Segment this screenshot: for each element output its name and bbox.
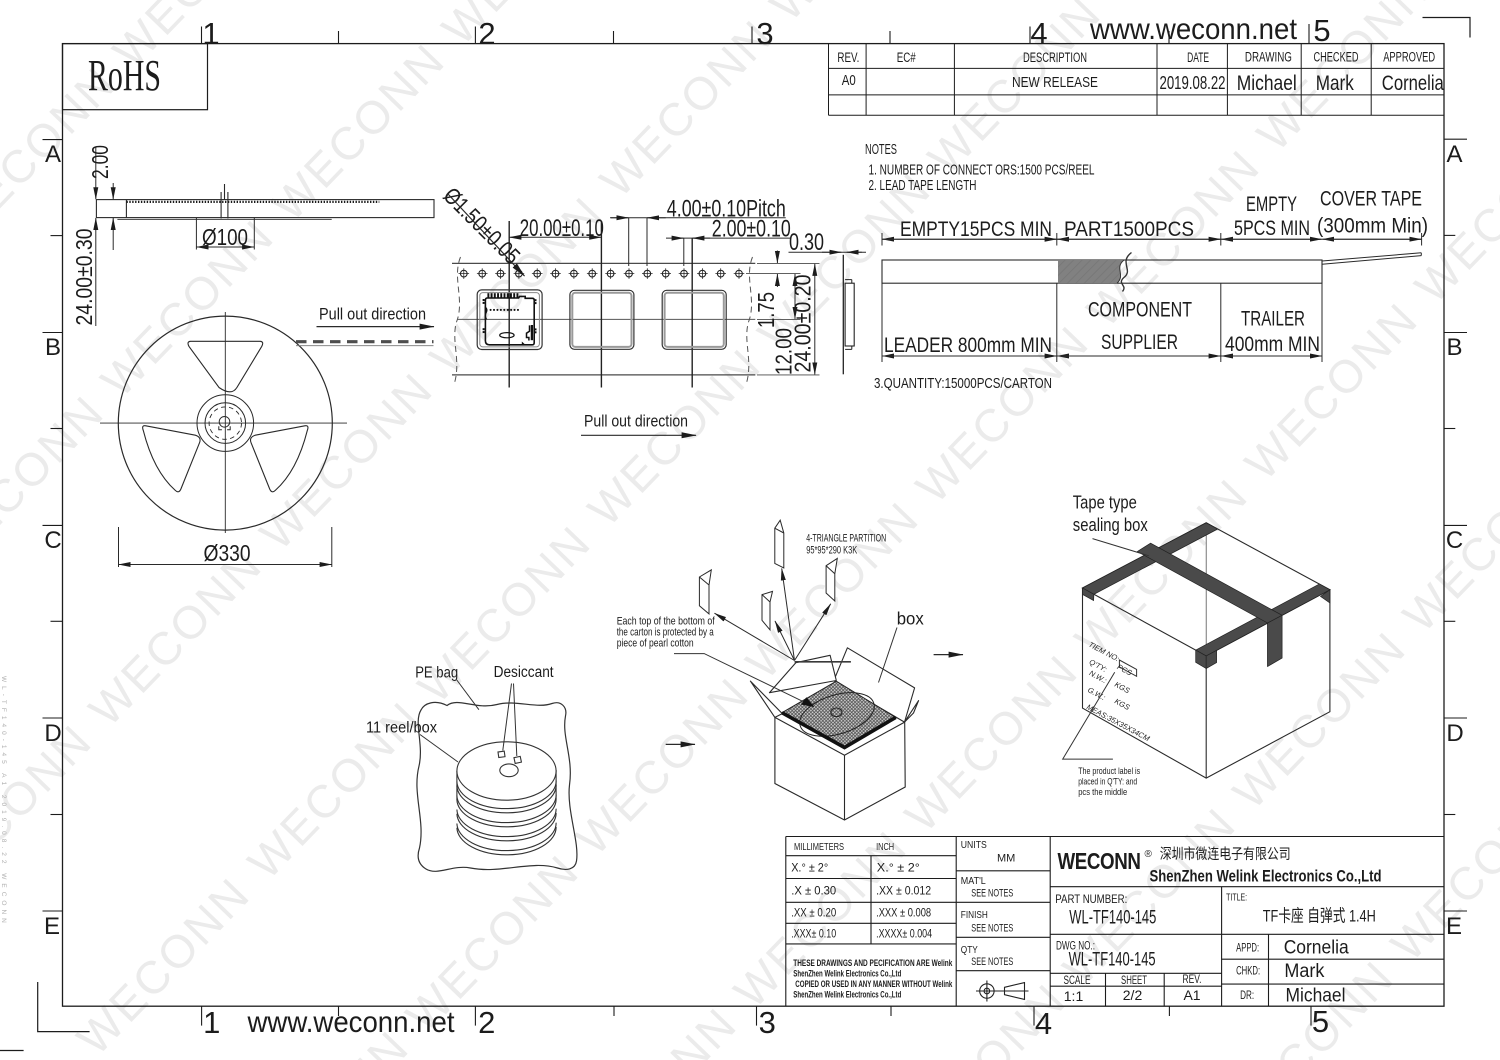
- svg-text:EMPTY15PCS MIN: EMPTY15PCS MIN: [900, 217, 1052, 241]
- svg-text:WL-TF140-145: WL-TF140-145: [1069, 950, 1156, 971]
- svg-text:MAT'L: MAT'L: [961, 875, 986, 887]
- svg-text:A0: A0: [842, 72, 856, 89]
- svg-text:SEE NOTES: SEE NOTES: [971, 956, 1013, 968]
- svg-text:The product label is: The product label is: [1078, 766, 1140, 777]
- svg-text:Michael: Michael: [1237, 71, 1297, 95]
- svg-text:.XX ± 0.012: .XX ± 0.012: [876, 886, 931, 898]
- svg-text:4-TRIANGLE PARTITION: 4-TRIANGLE PARTITION: [806, 533, 886, 545]
- svg-text:Each top of the bottom of: Each top of the bottom of: [617, 615, 716, 627]
- svg-text:THESE DRAWINGS AND PECIFICATIO: THESE DRAWINGS AND PECIFICATION ARE Weli…: [793, 958, 953, 968]
- svg-text:A1: A1: [1183, 987, 1200, 1003]
- svg-text:Pull out direction: Pull out direction: [319, 306, 426, 324]
- svg-text:REV.: REV.: [1183, 972, 1202, 986]
- svg-text:2.00: 2.00: [87, 145, 113, 179]
- svg-text:C: C: [44, 527, 61, 554]
- svg-text:.X ± 0.30: .X ± 0.30: [791, 886, 836, 898]
- svg-text:INCH: INCH: [876, 841, 894, 853]
- svg-text:Ø330: Ø330: [204, 540, 251, 566]
- svg-text:C: C: [1446, 527, 1463, 554]
- svg-text:24.00±0.30: 24.00±0.30: [71, 229, 97, 326]
- svg-text:SHEET: SHEET: [1121, 973, 1147, 987]
- svg-text:2: 2: [478, 1005, 495, 1040]
- svg-text:NEW RELEASE: NEW RELEASE: [1012, 74, 1098, 91]
- svg-text:MILLIMETERS: MILLIMETERS: [794, 841, 844, 853]
- svg-text:COPIED OR USED IN ANY MANNER W: COPIED OR USED IN ANY MANNER WITHOUT Wel…: [795, 979, 953, 989]
- svg-text:Ø100: Ø100: [202, 224, 248, 250]
- svg-text:Tape type: Tape type: [1073, 493, 1137, 513]
- svg-text:D: D: [44, 720, 61, 747]
- svg-text:FINISH: FINISH: [961, 909, 988, 921]
- svg-text:NOTES: NOTES: [865, 141, 897, 158]
- svg-text:WECONN: WECONN: [1058, 848, 1141, 874]
- svg-text:1:1: 1:1: [1064, 988, 1084, 1004]
- svg-text:PE bag: PE bag: [415, 665, 458, 682]
- svg-text:3.QUANTITY:15000PCS/CARTON: 3.QUANTITY:15000PCS/CARTON: [874, 375, 1052, 392]
- svg-text:UNITS: UNITS: [961, 839, 987, 851]
- svg-text:placed in Q'TY: and: placed in Q'TY: and: [1078, 777, 1137, 788]
- svg-text:Cornelia: Cornelia: [1284, 938, 1349, 959]
- svg-text:EMPTY: EMPTY: [1246, 192, 1297, 216]
- svg-text:ShenZhen Welink Electronics Co: ShenZhen Welink Electronics Co.,Ltd: [793, 990, 901, 1000]
- svg-text:A: A: [1446, 141, 1462, 168]
- svg-text:.XXX ± 0.008: .XXX ± 0.008: [876, 908, 931, 920]
- svg-text:Cornelia: Cornelia: [1382, 71, 1444, 95]
- svg-text:box: box: [897, 609, 924, 629]
- svg-text:SEE NOTES: SEE NOTES: [971, 923, 1013, 935]
- svg-text:X.° ± 2°: X.° ± 2°: [791, 863, 828, 875]
- svg-text:CHECKED: CHECKED: [1314, 50, 1359, 65]
- svg-text:1: 1: [203, 1005, 220, 1040]
- svg-text:A: A: [45, 141, 61, 168]
- svg-text:COMPONENT: COMPONENT: [1088, 298, 1192, 322]
- svg-text:24.00±0.20: 24.00±0.20: [790, 275, 816, 373]
- svg-text:X.° ± 2°: X.° ± 2°: [877, 863, 920, 875]
- svg-text:2: 2: [478, 16, 495, 51]
- svg-text:(300mm Min): (300mm Min): [1317, 214, 1428, 238]
- svg-text:.XXX± 0.10: .XXX± 0.10: [791, 929, 836, 941]
- svg-text:1: 1: [202, 16, 219, 51]
- svg-text:95*95*290 K3K: 95*95*290 K3K: [806, 545, 857, 557]
- svg-text:www.weconn.net: www.weconn.net: [1089, 13, 1298, 46]
- svg-text:SEE NOTES: SEE NOTES: [971, 888, 1013, 900]
- svg-text:APPROVED: APPROVED: [1383, 50, 1435, 65]
- svg-text:REV.: REV.: [837, 50, 859, 65]
- svg-text:the carton is protected by a: the carton is protected by a: [617, 627, 715, 639]
- svg-text:D: D: [1446, 720, 1463, 747]
- svg-text:TF卡座 自弹式 1.4H: TF卡座 自弹式 1.4H: [1263, 907, 1376, 926]
- svg-text:DATE: DATE: [1187, 50, 1209, 65]
- svg-text:DR:: DR:: [1240, 990, 1254, 1002]
- svg-text:WL-TF140-145: WL-TF140-145: [1069, 908, 1156, 929]
- svg-text:11 reel/box: 11 reel/box: [366, 719, 437, 736]
- svg-text:B: B: [1446, 334, 1462, 361]
- svg-text:1. NUMBER OF CONNECT ORS:1500: 1. NUMBER OF CONNECT ORS:1500 PCS/REEL: [869, 162, 1095, 179]
- svg-text:PART NUMBER:: PART NUMBER:: [1055, 894, 1127, 906]
- svg-text:5PCS MIN: 5PCS MIN: [1234, 216, 1310, 240]
- svg-text:5: 5: [1313, 13, 1330, 48]
- svg-text:CHKD:: CHKD:: [1236, 965, 1260, 977]
- svg-text:Mark: Mark: [1284, 961, 1324, 982]
- svg-text:piece of pearl cotton: piece of pearl cotton: [617, 638, 694, 650]
- svg-text:3: 3: [759, 1005, 776, 1040]
- svg-text:E: E: [44, 913, 60, 940]
- svg-text:.XXXX± 0.004: .XXXX± 0.004: [876, 929, 932, 941]
- svg-text:E: E: [1446, 913, 1462, 940]
- svg-text:WL-TF140-145 A1 2019.08.22 WEC: WL-TF140-145 A1 2019.08.22 WECONN: [0, 676, 7, 927]
- svg-text:PART1500PCS: PART1500PCS: [1064, 217, 1194, 241]
- svg-text:ShenZhen Welink Electronics Co: ShenZhen Welink Electronics Co.,Ltd: [793, 969, 901, 979]
- svg-text:Michael: Michael: [1286, 986, 1346, 1007]
- svg-text:3: 3: [756, 16, 773, 51]
- svg-text:深圳市微连电子有限公司: 深圳市微连电子有限公司: [1160, 846, 1291, 863]
- svg-text:EC#: EC#: [897, 50, 916, 65]
- svg-text:COVER TAPE: COVER TAPE: [1320, 187, 1422, 211]
- svg-text:ShenZhen Welink Electronics Co: ShenZhen Welink Electronics Co.,Ltd: [1150, 867, 1382, 886]
- svg-text:DESCRIPTION: DESCRIPTION: [1023, 50, 1087, 65]
- svg-text:sealing box: sealing box: [1073, 515, 1148, 535]
- svg-text:Desiccant: Desiccant: [494, 664, 555, 681]
- svg-text:4: 4: [1035, 1006, 1052, 1041]
- svg-text:5: 5: [1312, 1004, 1329, 1039]
- svg-text:QTY: QTY: [961, 944, 978, 956]
- svg-text:2. LEAD TAPE LENGTH: 2. LEAD TAPE LENGTH: [869, 177, 977, 194]
- svg-text:TRAILER: TRAILER: [1241, 307, 1305, 331]
- svg-text:SCALE: SCALE: [1064, 973, 1091, 987]
- svg-text:1.75: 1.75: [753, 292, 779, 328]
- svg-text:TITLE:: TITLE:: [1226, 892, 1247, 904]
- svg-text:2/2: 2/2: [1123, 987, 1143, 1003]
- svg-text:www.weconn.net: www.weconn.net: [247, 1006, 456, 1039]
- svg-text:.XX ± 0.20: .XX ± 0.20: [791, 908, 836, 920]
- svg-text:2019.08.22: 2019.08.22: [1160, 73, 1226, 93]
- svg-text:20.00±0.10: 20.00±0.10: [520, 215, 604, 242]
- svg-text:DRAWING: DRAWING: [1245, 50, 1292, 65]
- svg-text:SUPPLIER: SUPPLIER: [1101, 330, 1178, 354]
- svg-text:Mark: Mark: [1316, 71, 1354, 95]
- svg-text:APPD:: APPD:: [1236, 942, 1259, 954]
- svg-text:B: B: [45, 334, 61, 361]
- svg-text:RoHS: RoHS: [88, 51, 161, 100]
- svg-text:LEADER 800mm MIN: LEADER 800mm MIN: [884, 333, 1052, 357]
- svg-text:pcs the middle: pcs the middle: [1078, 787, 1127, 798]
- svg-text:®: ®: [1145, 849, 1153, 860]
- svg-text:MM: MM: [997, 853, 1015, 865]
- svg-text:Pull out direction: Pull out direction: [584, 413, 688, 431]
- svg-text:400mm MIN: 400mm MIN: [1225, 332, 1320, 356]
- svg-text:4: 4: [1030, 16, 1047, 51]
